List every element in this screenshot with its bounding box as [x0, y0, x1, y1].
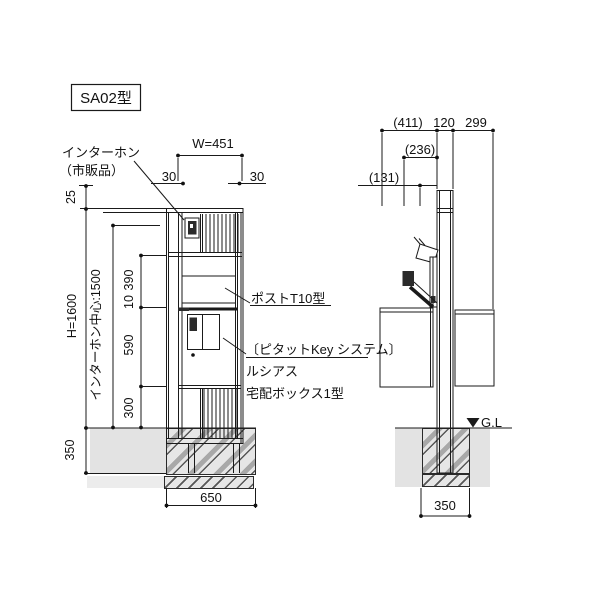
side-post-lines [437, 190, 453, 473]
keyhole-panel [190, 318, 198, 332]
dim-intercom-center-label: インターホン中心:1500 [88, 269, 103, 400]
model-title: SA02型 [80, 90, 132, 107]
technical-drawing-canvas: SA02型 インターホン （市販品） W=451 30 30 25 H=1600… [0, 0, 600, 600]
side-dim-foundation-width-label: 350 [434, 498, 456, 513]
intercom-label-line2: （市販品） [59, 163, 124, 178]
front-upper-louver [201, 214, 239, 252]
front-hinge-block [178, 308, 189, 312]
side-dim-post-depth-label: 120 [433, 115, 455, 130]
dim-foundation-width-label: 650 [200, 490, 222, 505]
dim-seg1-label: 390 [122, 270, 136, 291]
front-view [80, 208, 256, 474]
side-rear-box [455, 310, 494, 386]
drawing-linework: SA02型 インターホン （市販品） W=451 30 30 25 H=1600… [0, 0, 600, 600]
dim-seg4-label: 300 [122, 398, 136, 419]
lock-dot [191, 353, 195, 357]
dim-seg2-label: 10 [122, 295, 136, 309]
front-lower-louver [201, 389, 237, 438]
intercom-leader-line [134, 161, 184, 220]
delivery-label-line1: 〔ピタットKey システム〕 [246, 342, 402, 357]
side-dim-intercom-projection-label: (131) [369, 170, 399, 185]
dim-left-rail-label: 30 [162, 169, 176, 184]
dim-height-label: H=1600 [65, 294, 79, 338]
gl-marker-icon [467, 418, 480, 428]
dim-foundation-depth-label: 350 [63, 440, 77, 461]
intercom-label-line1: インターホン [62, 145, 140, 160]
front-lock-panel [188, 315, 220, 357]
delivery-label-line3: 宅配ボックス1型 [246, 386, 344, 401]
side-view [380, 190, 512, 473]
dim-top-label: 25 [64, 190, 78, 204]
front-intercom-unit [185, 218, 199, 238]
side-dim-rear-overhang-label: 299 [465, 115, 487, 130]
side-dim-front-overhang-label: (411) [393, 115, 422, 130]
post-label: ポストT10型 [251, 291, 325, 306]
dim-seg3-label: 590 [122, 335, 136, 356]
dim-width-label: W=451 [192, 136, 234, 151]
side-dim-lid-projection-label: (236) [405, 142, 435, 157]
delivery-label-line2: ルシアス [246, 364, 298, 379]
ground-level-label: G.L [481, 415, 502, 430]
dim-right-rail-label: 30 [250, 169, 264, 184]
